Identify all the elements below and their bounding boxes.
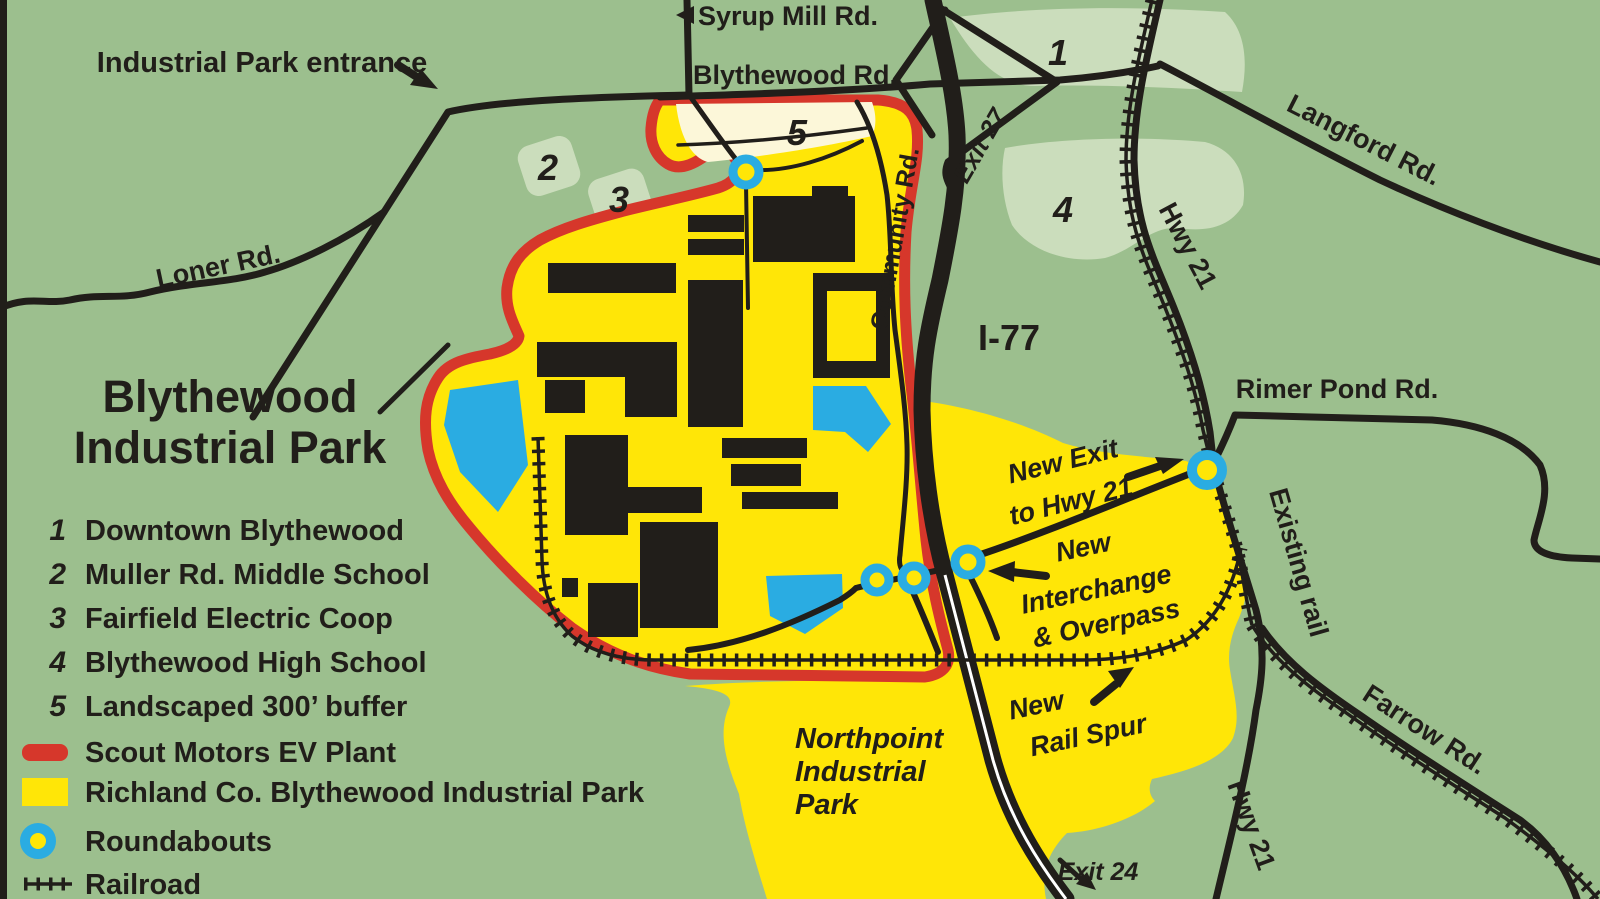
northpoint-label-3: Park: [795, 789, 860, 821]
map-number-1: 1: [1048, 32, 1068, 73]
legend-label-3: Fairfield Electric Coop: [85, 603, 393, 635]
blythewood-road-label: Blythewood Rd.: [693, 60, 897, 90]
map-number-4: 4: [1052, 189, 1073, 230]
legend-label-1: Downtown Blythewood: [85, 515, 404, 547]
building: [548, 263, 676, 293]
building: [625, 377, 677, 417]
building: [731, 464, 801, 486]
legend-railroad-label: Railroad: [85, 869, 201, 899]
interchange-arrow-line: [1012, 572, 1046, 576]
legend-num-1: 1: [49, 514, 66, 547]
building: [688, 280, 743, 427]
legend-num-5: 5: [49, 690, 67, 723]
map-title-line2: Industrial Park: [74, 422, 388, 473]
map-number-5: 5: [787, 112, 808, 153]
syrup-mill-label: Syrup Mill Rd.: [698, 1, 878, 31]
building: [640, 522, 718, 628]
building: [742, 492, 838, 509]
building: [565, 435, 628, 535]
building: [688, 215, 744, 232]
legend-richland-label: Richland Co. Blythewood Industrial Park: [85, 777, 645, 809]
legend-num-2: 2: [48, 558, 66, 591]
roundabout-icon: [902, 566, 926, 590]
building: [545, 380, 585, 413]
roundabout-icon: [865, 568, 889, 592]
building: [562, 578, 578, 597]
legend-roundabouts-label: Roundabouts: [85, 826, 272, 858]
legend-richland-swatch: [22, 778, 68, 806]
building: [537, 342, 677, 377]
northpoint-label-2: Industrial: [795, 756, 926, 788]
legend-num-3: 3: [49, 602, 66, 635]
legend-roundabout-icon: [25, 828, 51, 854]
map-left-border: [0, 0, 7, 899]
map-number-2: 2: [537, 147, 558, 188]
map-number-3: 3: [609, 179, 629, 220]
map-title-line1: Blythewood: [103, 371, 358, 422]
legend-scout-swatch: [22, 744, 68, 761]
legend-num-4: 4: [48, 646, 66, 679]
roundabout-icon: [955, 549, 981, 575]
legend-label-4: Blythewood High School: [85, 647, 427, 679]
roundabout-icon: [1192, 455, 1222, 485]
internal-stub-road: [746, 184, 748, 308]
building: [753, 196, 855, 262]
legend-label-2: Muller Rd. Middle School: [85, 559, 430, 591]
building: [688, 239, 744, 255]
northpoint-label-1: Northpoint: [795, 723, 945, 755]
building: [588, 583, 638, 637]
map-screenshot: Syrup Mill Rd. Blythewood Rd. Industrial…: [0, 0, 1600, 899]
exit24-label: Exit 24: [1058, 858, 1139, 886]
building: [628, 487, 702, 513]
roundabout-icon: [733, 159, 759, 185]
blythewood-map: Syrup Mill Rd. Blythewood Rd. Industrial…: [0, 0, 1600, 899]
legend-label-5: Landscaped 300’ buffer: [85, 691, 407, 723]
rimer-pond-label: Rimer Pond Rd.: [1236, 374, 1439, 404]
entrance-label: Industrial Park entrance: [97, 47, 427, 79]
i77-label: I-77: [978, 317, 1040, 358]
legend-scout-label: Scout Motors EV Plant: [85, 737, 396, 769]
building: [722, 438, 807, 458]
